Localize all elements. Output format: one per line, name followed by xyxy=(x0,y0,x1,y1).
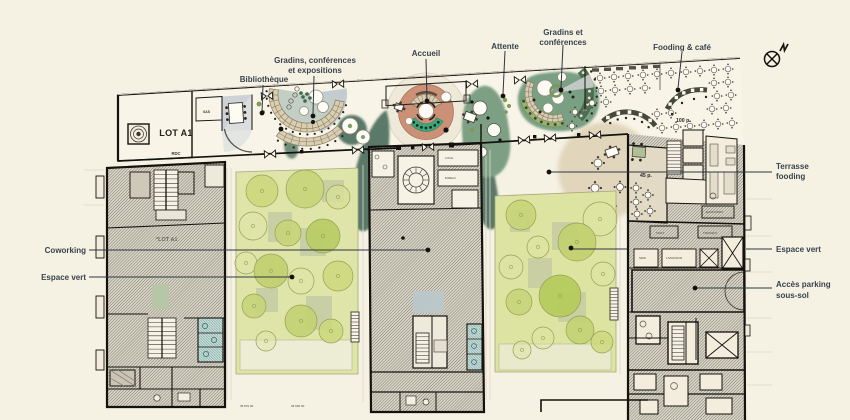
svg-text:TRANSFO: TRANSFO xyxy=(703,231,718,235)
svg-text:sous-sol: sous-sol xyxy=(776,291,809,300)
svg-text:Accueil: Accueil xyxy=(412,49,440,58)
svg-text:TOILT: TOILT xyxy=(656,231,664,235)
svg-text:RDC: RDC xyxy=(171,151,180,156)
svg-text:LOT A1: LOT A1 xyxy=(159,128,192,138)
svg-text:Espace vert: Espace vert xyxy=(776,245,821,254)
svg-text:35 870 00: 35 870 00 xyxy=(240,404,254,408)
svg-text:Bibliothèque: Bibliothèque xyxy=(240,75,289,84)
svg-text:SDW: SDW xyxy=(639,256,646,260)
svg-text:SAS: SAS xyxy=(203,110,211,114)
svg-text:Gradins, conférences: Gradins, conférences xyxy=(274,56,356,65)
svg-text:Espace vert: Espace vert xyxy=(41,273,86,282)
svg-text:ECONOMAT: ECONOMAT xyxy=(706,210,723,214)
svg-text:36 690 00: 36 690 00 xyxy=(291,404,305,408)
svg-text:et expositions: et expositions xyxy=(288,66,342,75)
svg-text:LOCAL: LOCAL xyxy=(445,156,454,160)
svg-text:fooding: fooding xyxy=(776,172,805,181)
svg-text:Terrasse: Terrasse xyxy=(776,162,809,171)
svg-text:LIVRAISON: LIVRAISON xyxy=(666,256,682,260)
svg-text:45 p.: 45 p. xyxy=(640,173,652,179)
svg-text:conférences: conférences xyxy=(539,38,587,47)
svg-text:Accès parking: Accès parking xyxy=(776,280,831,289)
svg-text:BUREAU: BUREAU xyxy=(445,176,456,180)
svg-text:Attente: Attente xyxy=(491,42,519,51)
svg-text:Coworking: Coworking xyxy=(45,246,86,255)
svg-text:Gradins et: Gradins et xyxy=(543,28,583,37)
svg-text:100 p.: 100 p. xyxy=(676,118,691,124)
svg-text:Fooding & café: Fooding & café xyxy=(653,43,711,52)
svg-text:*LOT A1: *LOT A1 xyxy=(156,237,178,243)
